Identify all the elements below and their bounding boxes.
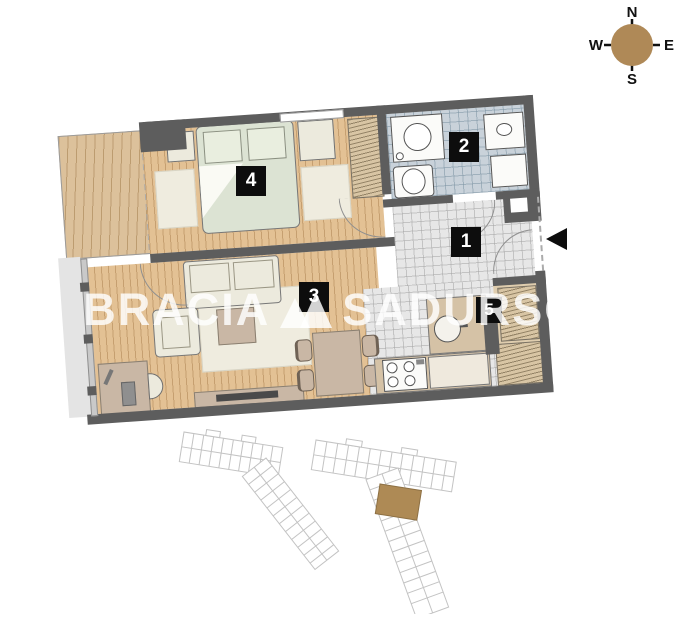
window-frame-tick [83, 334, 93, 344]
minimap-wing-b [242, 458, 338, 569]
room-label-2-text: 2 [459, 136, 470, 158]
entrance-arrow-icon [546, 228, 567, 250]
cooktop-controls [416, 359, 424, 365]
armchair-cushion [160, 315, 190, 349]
sofa-cushion [189, 262, 231, 293]
room-label-3-text: 3 [309, 286, 320, 308]
kitchen-sink-tap [460, 324, 468, 328]
apartment-floor-plan [45, 88, 571, 437]
hall-wardrobe [495, 341, 545, 386]
minimap-highlight [375, 484, 421, 520]
room-label-4: 4 [236, 166, 266, 196]
balcony [58, 130, 152, 260]
bedside-rug [154, 169, 198, 230]
compass-label-south: S [627, 71, 637, 88]
window-frame-tick [80, 282, 90, 292]
compass-label-west: W [589, 37, 604, 54]
compass-label-east: E [664, 37, 674, 54]
floor-plan-page: N S W E [0, 0, 694, 619]
room-label-5: 5 [476, 297, 502, 323]
hall-wardrobe [497, 285, 540, 342]
dining-table [312, 330, 364, 397]
dining-chair [361, 334, 379, 357]
dishwasher [428, 353, 490, 389]
room-label-2: 2 [449, 132, 479, 162]
desk-monitor [121, 381, 137, 406]
room-label-1: 1 [451, 227, 481, 257]
room-label-5-text: 5 [484, 300, 493, 320]
coffee-table [216, 307, 256, 346]
bathroom-cabinet [490, 153, 528, 187]
compass-label-north: N [627, 5, 638, 21]
compass-circle [611, 24, 653, 66]
sofa-cushion [233, 259, 275, 290]
room-label-3: 3 [299, 282, 329, 312]
dresser [297, 119, 336, 161]
wall-top-stub [139, 119, 187, 152]
dining-chair [294, 339, 312, 362]
window-frame-tick [87, 386, 97, 396]
room-label-1-text: 1 [461, 231, 472, 253]
building-minimap [168, 424, 488, 614]
room-label-4-text: 4 [246, 170, 257, 192]
pillow [247, 126, 287, 161]
compass-rose-icon: N S W E [585, 5, 680, 90]
dining-chair [296, 369, 314, 392]
wall-entry-pillar-notch [510, 198, 528, 213]
pillow [203, 129, 243, 164]
